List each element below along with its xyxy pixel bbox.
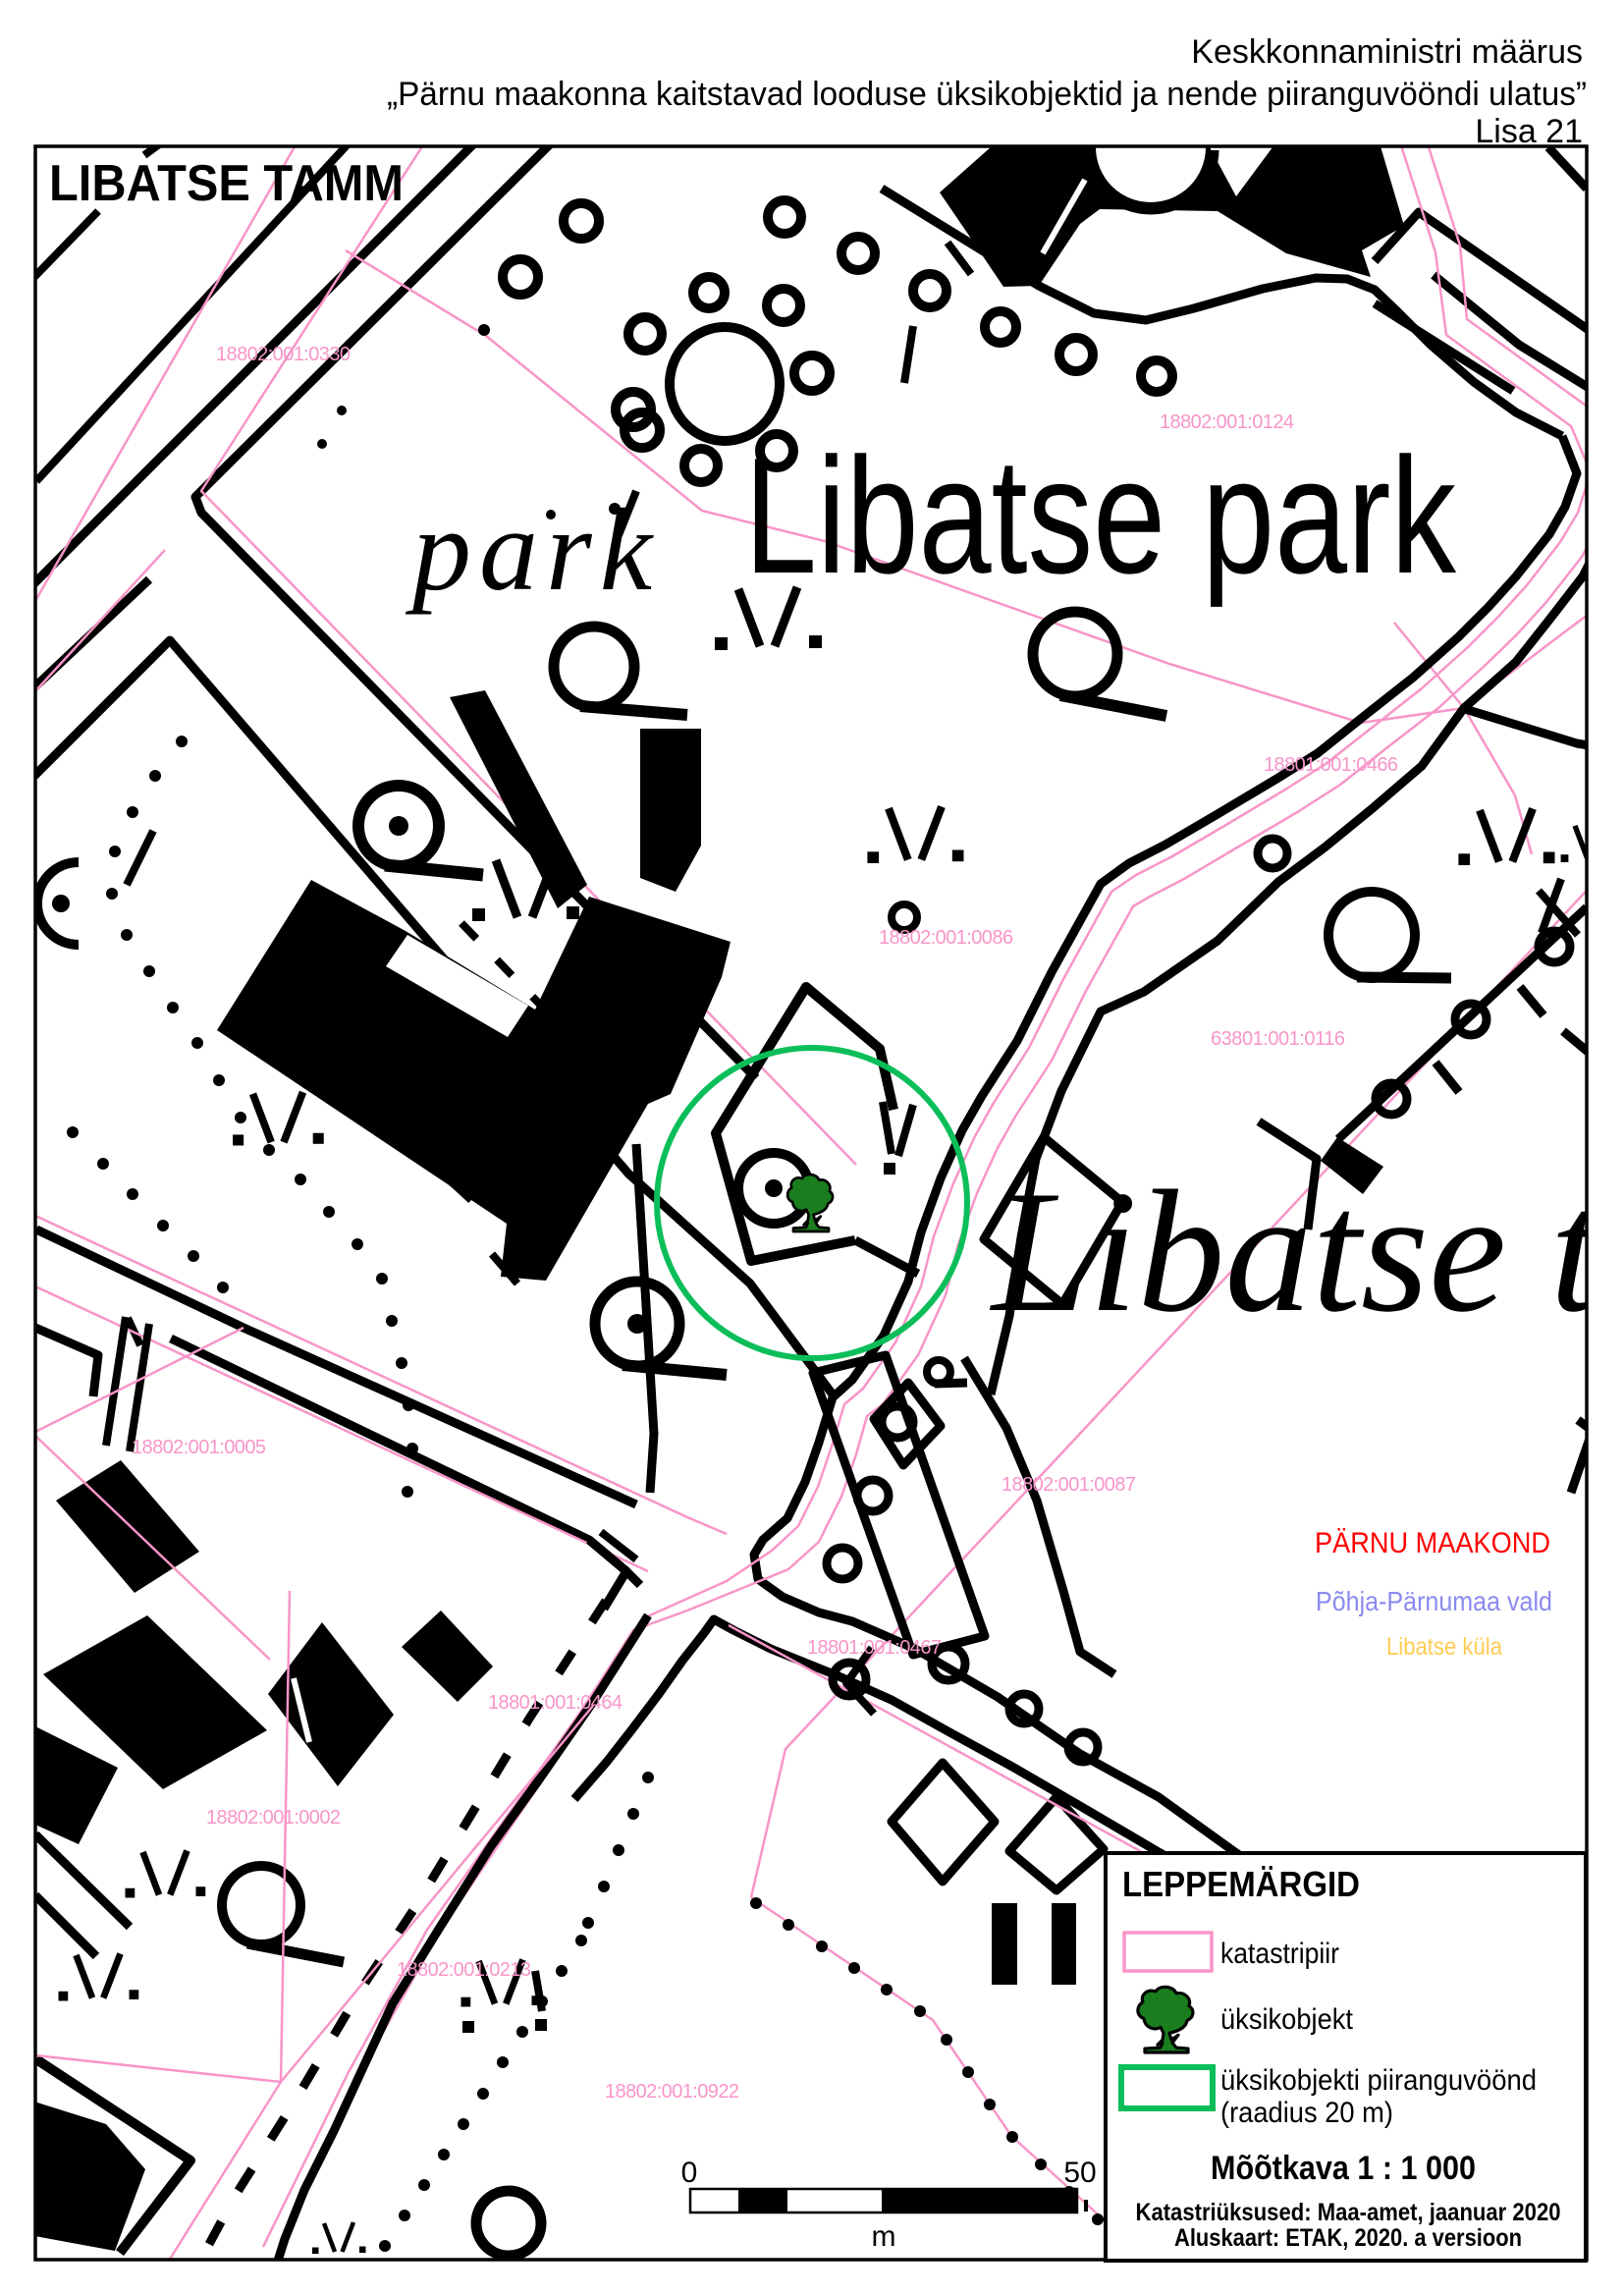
svg-text:Libatse park: Libatse park [744, 423, 1457, 608]
svg-text:Põhja-Pärnumaa vald: Põhja-Pärnumaa vald [1316, 1586, 1552, 1616]
svg-text:18802:001:0002: 18802:001:0002 [206, 1807, 341, 1829]
svg-text:18801:001:0464: 18801:001:0464 [488, 1692, 623, 1714]
svg-text:0: 0 [681, 2157, 698, 2189]
svg-text:m: m [872, 2220, 896, 2253]
svg-text:katastripiir: katastripiir [1220, 1938, 1339, 1970]
svg-text:park: park [405, 484, 660, 615]
svg-text:18802:001:0213: 18802:001:0213 [397, 1959, 531, 1981]
svg-text:LEPPEMÄRGID: LEPPEMÄRGID [1122, 1864, 1360, 1904]
svg-text:18801:001:0467: 18801:001:0467 [807, 1637, 942, 1659]
svg-text:18802:001:0922: 18802:001:0922 [605, 2081, 739, 2103]
svg-text:18802:001:0087: 18802:001:0087 [1001, 1474, 1136, 1496]
svg-text:Keskkonnaministri määrus: Keskkonnaministri määrus [1191, 33, 1583, 71]
svg-text:50: 50 [1063, 2157, 1096, 2189]
svg-text:Katastriüksused: Maa-amet, jaa: Katastriüksused: Maa-amet, jaanuar 2020 [1136, 2199, 1561, 2226]
svg-text:Mõõtkava 1 : 1 000: Mõõtkava 1 : 1 000 [1211, 2150, 1476, 2187]
svg-text:18802:001:0330: 18802:001:0330 [216, 344, 351, 365]
svg-text:Libatse küla: Libatse küla [1386, 1633, 1502, 1661]
svg-text:18802:001:0005: 18802:001:0005 [132, 1437, 266, 1458]
svg-text:Aluskaart: ETAK, 2020. a versi: Aluskaart: ETAK, 2020. a versioon [1174, 2224, 1522, 2252]
svg-text:üksikobjekt: üksikobjekt [1220, 2003, 1354, 2036]
svg-text:üksikobjekti piiranguvöönd: üksikobjekti piiranguvöönd [1220, 2064, 1537, 2097]
svg-text:18801:001:0466: 18801:001:0466 [1264, 754, 1398, 776]
svg-text:Libatse te: Libatse te [989, 1154, 1624, 1348]
svg-text:18802:001:0086: 18802:001:0086 [879, 927, 1013, 949]
svg-text:LIBATSE TAMM: LIBATSE TAMM [49, 155, 404, 212]
svg-text:(raadius 20 m): (raadius 20 m) [1220, 2097, 1393, 2129]
svg-text:63801:001:0116: 63801:001:0116 [1211, 1028, 1345, 1050]
svg-text:„Pärnu maakonna kaitstavad loo: „Pärnu maakonna kaitstavad looduse üksik… [387, 76, 1587, 113]
svg-text:PÄRNU MAAKOND: PÄRNU MAAKOND [1315, 1527, 1550, 1559]
